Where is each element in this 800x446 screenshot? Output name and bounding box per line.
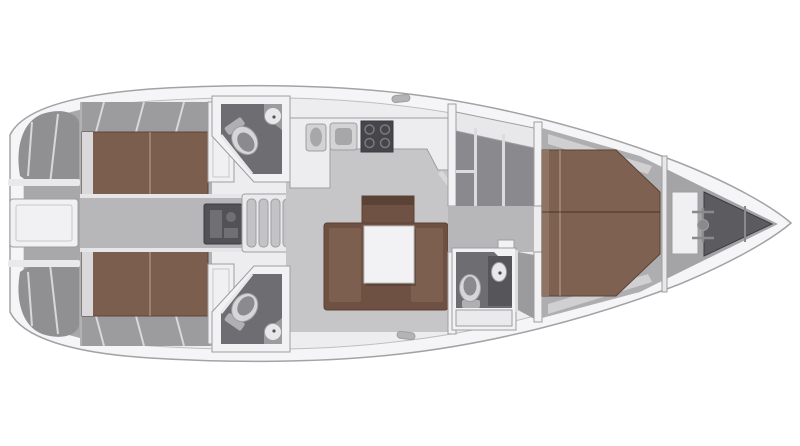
starboard-aft-berth [82, 251, 208, 316]
bow-bulkhead [662, 156, 667, 292]
transom-locker [10, 199, 78, 247]
cleat-icon [392, 94, 411, 103]
sink-drain [272, 329, 275, 332]
stove-handle [361, 153, 393, 157]
step-tread [271, 199, 280, 247]
sideboard-top [362, 196, 414, 205]
bow [662, 156, 778, 292]
starboard-bench-band [82, 316, 210, 346]
bavaria-yacht-floor-plan [0, 0, 800, 446]
sink-drain [498, 271, 501, 274]
sink-basin [335, 128, 352, 145]
cockpit-ledge-bottom [8, 260, 80, 267]
sink-drain [272, 115, 275, 118]
cleat-icon [397, 331, 416, 340]
wardrobe-shelf [456, 170, 474, 173]
sofa-cushion-left [329, 228, 361, 302]
windlass-platform [672, 192, 698, 254]
starboard-aft-berth-headboard [82, 251, 93, 316]
toilet-icon [460, 275, 481, 309]
main-bulkhead-top [448, 104, 456, 206]
engine-block [224, 228, 238, 238]
forward-bulkhead-bottom [534, 252, 542, 322]
head-cabinet [456, 310, 512, 326]
engine-pulley [226, 212, 236, 222]
sink-basin [310, 128, 322, 147]
port-bench-band [82, 102, 210, 132]
cockpit-ledge-top [8, 179, 80, 186]
wardrobe-divider [502, 134, 505, 208]
forward-bulkhead-top [534, 122, 542, 206]
forward-head [452, 248, 516, 330]
wardrobe-divider [474, 128, 477, 208]
port-aft-berth-headboard [82, 132, 93, 197]
yacht-floor-plan-image [0, 0, 800, 446]
companionway [80, 194, 294, 252]
engine-detail [210, 210, 222, 238]
port-aft-berth [82, 132, 208, 197]
shower-wall [515, 250, 518, 312]
forward-corridor [448, 206, 534, 252]
berth-foot-edge [542, 150, 549, 296]
saloon-table [364, 226, 414, 283]
midship [448, 104, 542, 334]
step-tread [247, 199, 256, 247]
step-tread [259, 199, 268, 247]
